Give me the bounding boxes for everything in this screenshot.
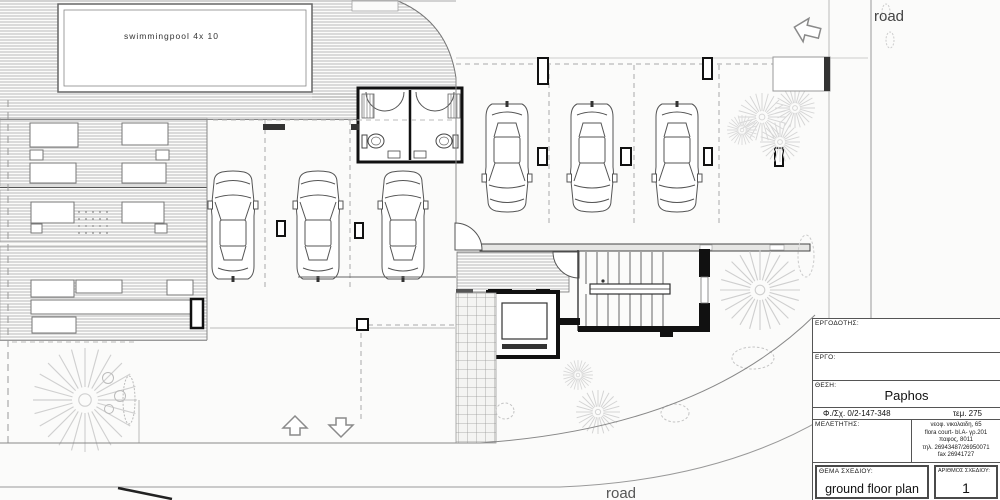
designer-address-line: παφος, 8011 xyxy=(912,437,1000,445)
terraces xyxy=(0,118,207,341)
title-block-row-ref: Φ./Σχ. 0/2-147-348 τεμ. 275 xyxy=(813,408,1000,420)
wc-fixture xyxy=(414,151,426,158)
column xyxy=(277,221,285,236)
terrace-feature xyxy=(156,150,169,160)
number-value: 1 xyxy=(936,480,996,496)
terrace-feature xyxy=(122,163,166,183)
tree xyxy=(563,360,593,390)
refuse-enclosure xyxy=(773,57,830,91)
column xyxy=(621,148,631,165)
subject-cell: ΘΕΜΑ ΣΧΕΔΙΟΥ: ground floor plan xyxy=(815,465,929,499)
title-block-row-project: ΕΡΓΟ: xyxy=(813,353,1000,381)
tiled-path xyxy=(456,293,496,443)
terrace-feature xyxy=(155,224,167,233)
core-building xyxy=(455,223,810,357)
terrace-feature xyxy=(167,280,193,295)
designer-address-line: flora court- bl.A- γρ.201 xyxy=(912,430,1000,438)
tree xyxy=(727,115,757,145)
terrace-wall xyxy=(31,300,195,314)
walkway xyxy=(456,293,496,443)
title-block-row-location: ΘΕΣΗ: Paphos xyxy=(813,381,1000,408)
terrace-feature xyxy=(31,224,42,233)
project-label: ΕΡΓΟ: xyxy=(815,354,836,361)
planting-bed xyxy=(77,208,112,234)
terrace-post xyxy=(191,299,203,328)
terrace-feature xyxy=(30,163,76,183)
tree xyxy=(775,88,815,128)
toilet-tank xyxy=(362,135,367,148)
number-cell: ΑΡΙΘΜΟΣ ΣΧΕΔΙΟΥ: 1 xyxy=(934,465,998,499)
pool-deck-left xyxy=(0,0,58,92)
car xyxy=(378,171,428,282)
tree xyxy=(33,348,137,452)
direction-arrow-left-icon xyxy=(791,15,822,45)
direction-arrow-up-icon xyxy=(283,416,307,435)
column xyxy=(357,319,368,330)
tree xyxy=(576,390,620,434)
employer-label: ΕΡΓΟΔΟΤΗΣ: xyxy=(815,320,859,327)
plot-ref: τεμ. 275 xyxy=(953,409,982,418)
subject-value: ground floor plan xyxy=(817,482,927,496)
toilet-icon xyxy=(368,134,384,148)
wc-fixture xyxy=(388,151,400,158)
car xyxy=(208,171,258,282)
stair-south-wall xyxy=(578,326,710,332)
road-label-bottom: road xyxy=(606,485,636,500)
designer-address-line: τηλ. 26943487/26950071 xyxy=(912,445,1000,453)
title-block: ΕΡΓΟΔΟΤΗΣ: ΕΡΓΟ: ΘΕΣΗ: Paphos Φ./Σχ. 0/2… xyxy=(812,318,1000,500)
pool-label: swimmingpool 4x 10 xyxy=(124,31,219,41)
designer-address: νεοφ. νικολαιδη, 65 flora court- bl.A- γ… xyxy=(911,420,1000,462)
pool-deck-bottom xyxy=(0,92,360,120)
swimming-pool xyxy=(58,4,312,92)
title-block-row-subject: ΘΕΜΑ ΣΧΕΔΙΟΥ: ground floor plan ΑΡΙΘΜΟΣ … xyxy=(813,463,1000,500)
car xyxy=(482,101,532,212)
road-mark xyxy=(118,488,172,499)
wc-window-hatch xyxy=(362,94,374,118)
designer-address-line: νεοφ. νικολαιδη, 65 xyxy=(912,422,1000,430)
terrace-feature xyxy=(31,202,74,223)
wc-window-hatch xyxy=(448,94,460,118)
shrub xyxy=(496,403,514,419)
title-block-row-employer: ΕΡΓΟΔΟΤΗΣ: xyxy=(813,319,1000,353)
designer-label: ΜΕΛΕΤΗΤΗΣ: xyxy=(815,421,860,428)
staircase xyxy=(558,249,710,337)
stair-pier xyxy=(699,249,710,277)
tree xyxy=(760,122,800,162)
tree xyxy=(720,250,800,330)
terrace-feature xyxy=(76,280,122,293)
column xyxy=(538,148,547,165)
shrub xyxy=(732,347,774,369)
number-label: ΑΡΙΘΜΟΣ ΣΧΕΔΙΟΥ: xyxy=(938,468,990,474)
wall-mark xyxy=(263,124,285,130)
terrace-feature xyxy=(30,150,43,160)
terrace-feature xyxy=(31,280,74,297)
car xyxy=(567,101,617,212)
entry-door-arc xyxy=(455,223,482,250)
lobby-floor xyxy=(457,252,569,292)
deck-notch xyxy=(352,0,398,11)
terrace-feature xyxy=(30,123,78,147)
column xyxy=(538,58,548,84)
sheet-ref: Φ./Σχ. 0/2-147-348 xyxy=(823,409,891,418)
wall-stub xyxy=(558,318,580,325)
stair-pier xyxy=(699,303,710,332)
subject-label: ΘΕΜΑ ΣΧΕΔΙΟΥ: xyxy=(819,468,873,475)
road-label-top: road xyxy=(874,8,904,25)
location-value: Paphos xyxy=(813,388,1000,403)
wc-building xyxy=(351,88,462,162)
column xyxy=(703,58,712,79)
direction-arrow-down-icon xyxy=(329,418,353,437)
car xyxy=(293,171,343,282)
designer-address-line: fax 26941727 xyxy=(912,452,1000,460)
elevator-car xyxy=(502,303,547,339)
shrub xyxy=(798,235,814,277)
wall-mark xyxy=(351,124,359,130)
elevator-door xyxy=(502,344,547,349)
terrace-feature xyxy=(122,123,168,145)
floor-plan-canvas: swimmingpool 4x 10 road road ΕΡΓΟΔΟΤΗΣ: … xyxy=(0,0,1000,500)
terrace-feature xyxy=(32,317,76,333)
core-top-wall xyxy=(480,244,810,251)
pool-deck-right xyxy=(312,0,456,100)
terrace-feature xyxy=(122,202,164,223)
wall-stub xyxy=(660,330,673,337)
road-edge-south xyxy=(0,360,900,487)
column xyxy=(704,148,712,165)
toilet-icon xyxy=(436,134,452,148)
stair-window xyxy=(701,277,708,303)
column xyxy=(355,223,363,238)
title-block-row-designer: ΜΕΛΕΤΗΤΗΣ: νεοφ. νικολαιδη, 65 flora cou… xyxy=(813,420,1000,463)
car xyxy=(652,101,702,212)
bush xyxy=(103,373,114,384)
parking-lower xyxy=(208,120,456,420)
shrub xyxy=(886,32,894,48)
